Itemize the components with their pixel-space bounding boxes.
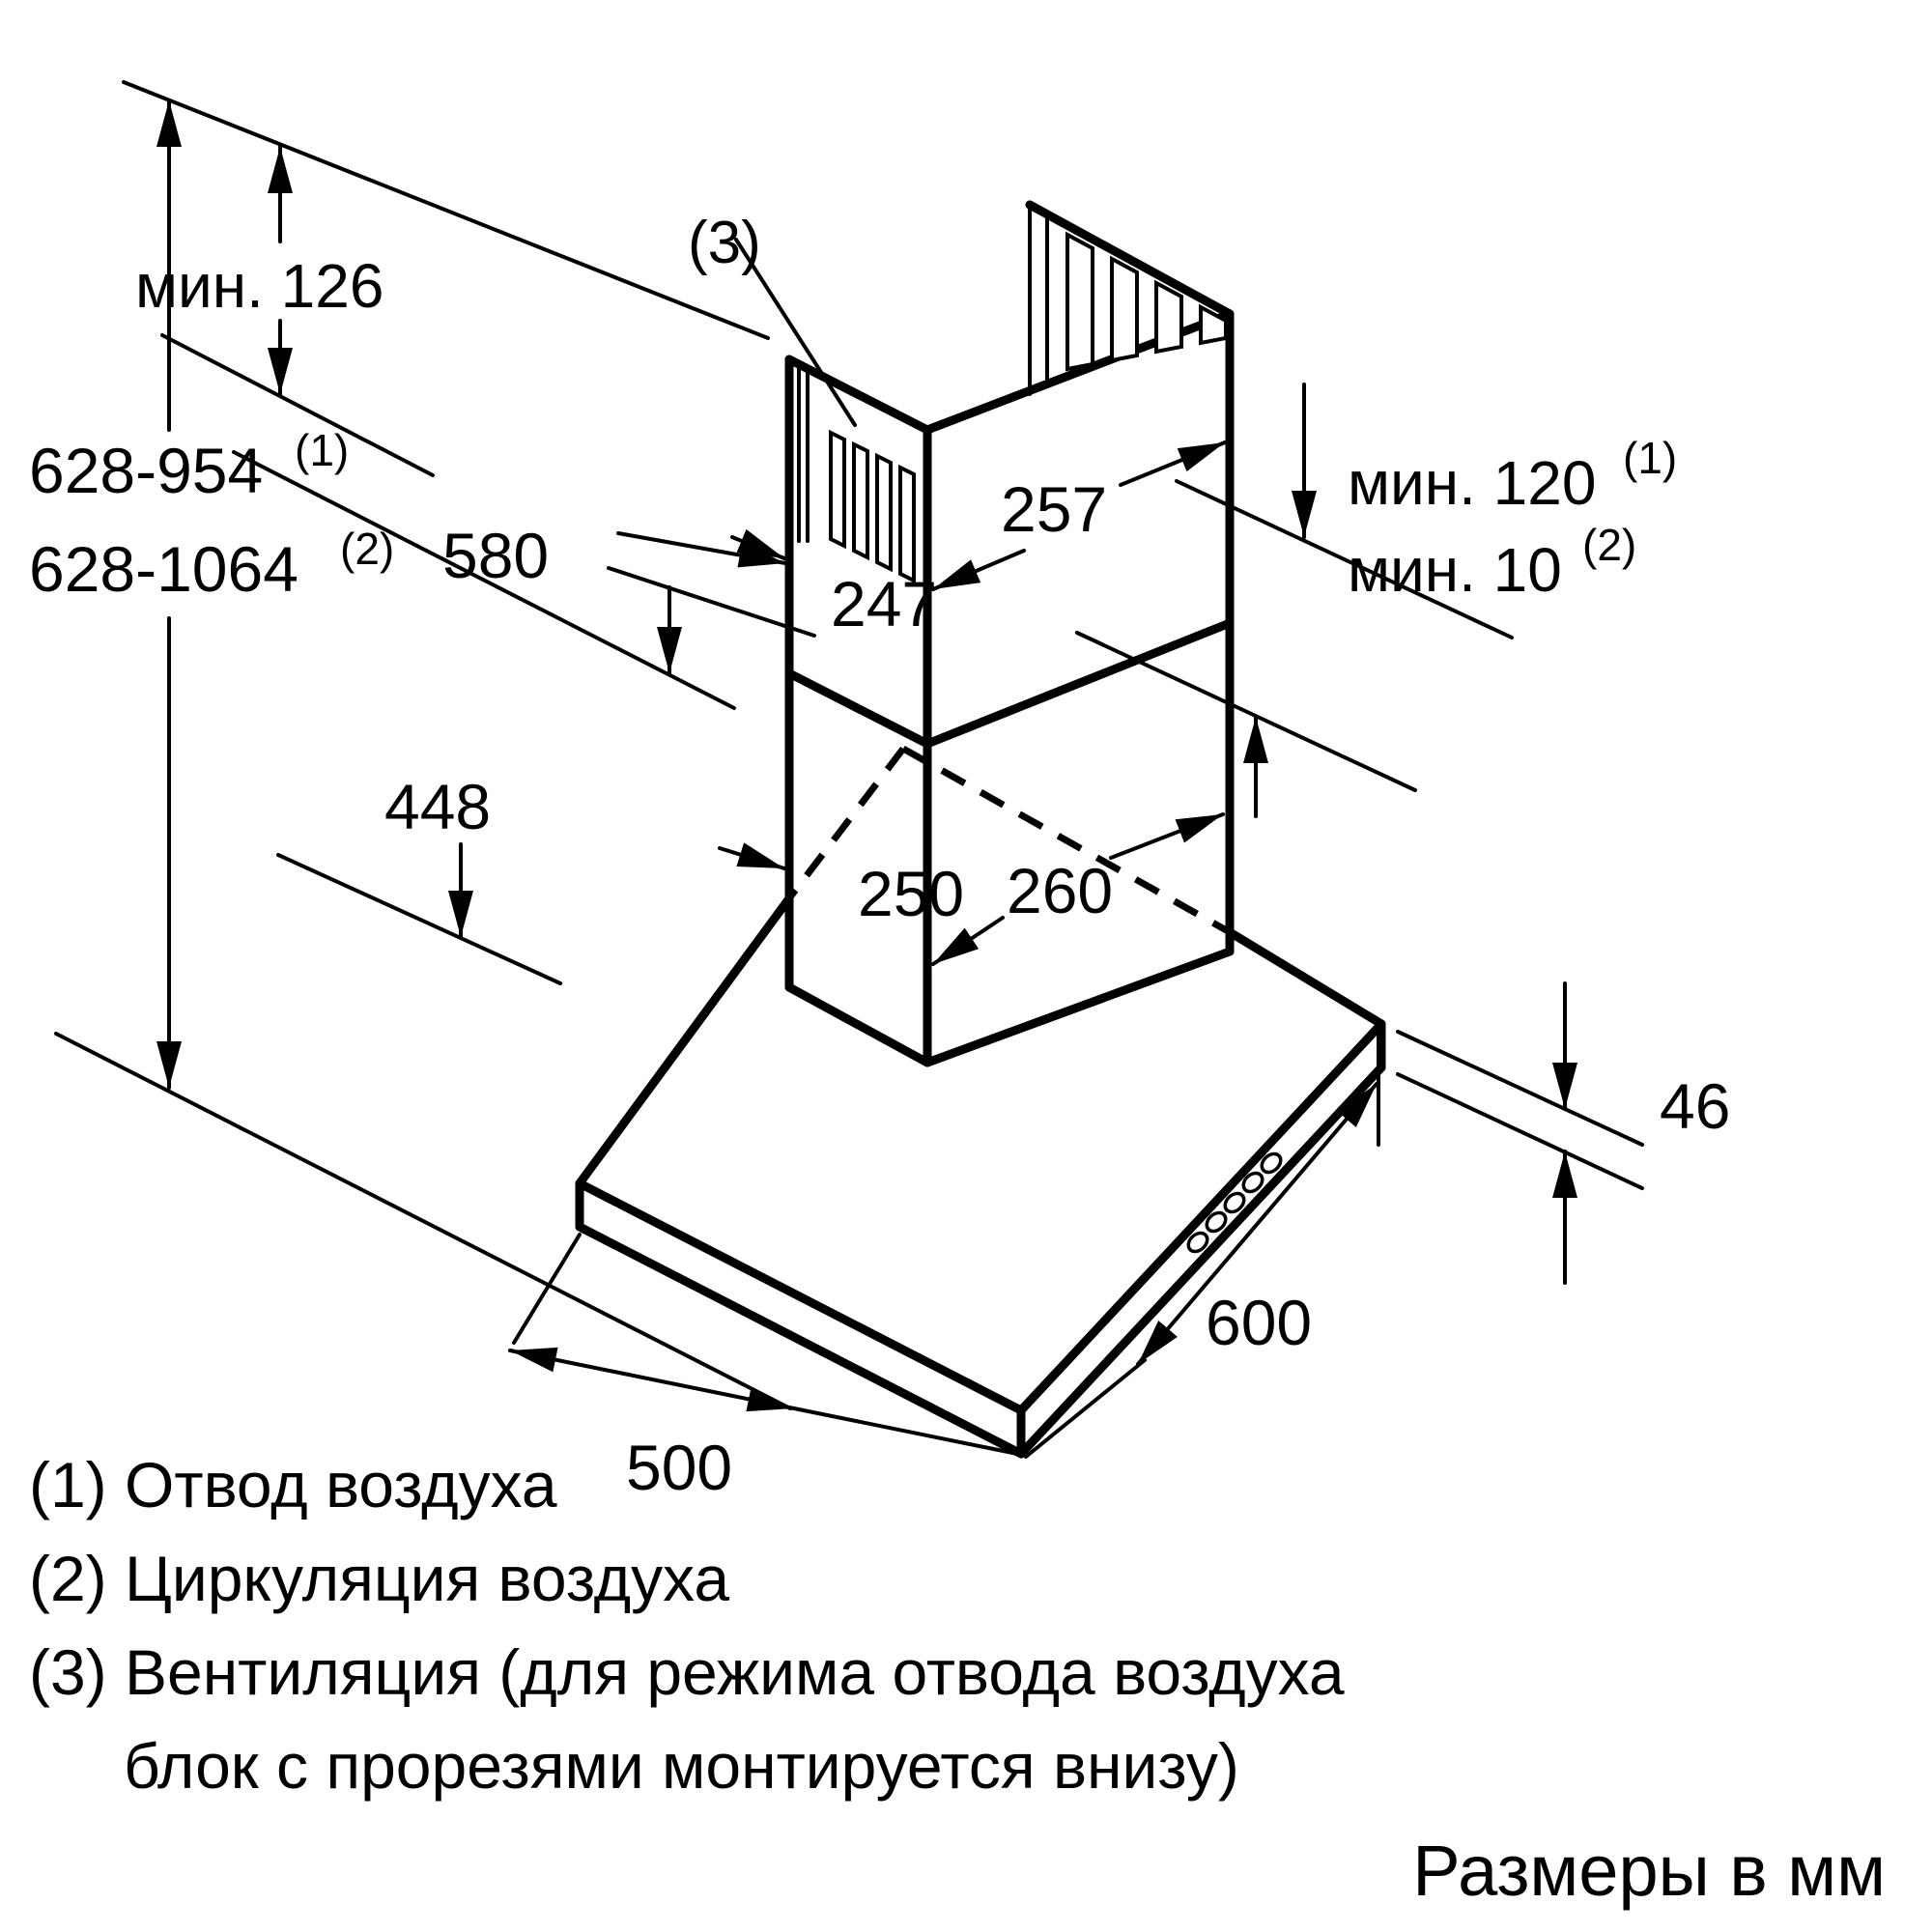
vent-slots-left-face [831,433,914,581]
label-hood-depth: 600 [1206,1287,1312,1358]
hood-dimension-drawing: мин. 126 628-954 (1) 628-1064 (2) 580 44… [0,0,1932,1932]
dim-hood-width [510,1235,1022,1455]
label-hood-width: 500 [626,1432,732,1503]
control-buttons [1184,1151,1284,1256]
label-lower-height: 448 [384,771,491,842]
dim-upper-section [618,533,785,673]
label-min-gap-recirc-ref: (2) [1582,520,1636,570]
label-ceiling-clearance: мин. 126 [135,251,384,321]
legend-line-3: (3) Вентиляция (для режима отвода воздух… [29,1636,1345,1708]
legend-line-2: (2) Циркуляция воздуха [29,1543,729,1614]
dim-hood-height [1398,983,1642,1283]
label-upper-height: 580 [442,520,549,591]
label-total-height-recirc: 628-1064 [29,533,298,605]
label-lower-front-width: 250 [858,858,964,929]
label-lower-side-width: 260 [1007,855,1113,926]
reference-lines-right [1077,481,1512,790]
label-total-height-recirc-ref: (2) [340,524,394,574]
legend-line-4: блок с прорезями монтируется внизу) [124,1730,1239,1802]
label-vent-callout: (3) [688,210,761,276]
label-min-gap-recirc: мин. 10 [1348,535,1562,605]
label-total-height-duct: 628-954 [29,435,263,506]
label-upper-front-width: 247 [831,568,937,639]
label-min-gap-duct: мин. 120 [1348,448,1596,518]
units-note: Размеры в мм [1412,1831,1886,1911]
label-hood-height: 46 [1660,1070,1730,1142]
legend-line-1: (1) Отвод воздуха [29,1449,557,1520]
dim-right-gaps [1256,384,1304,816]
label-upper-side-width: 257 [1001,473,1107,545]
label-total-height-duct-ref: (1) [295,425,349,475]
label-min-gap-duct-ref: (1) [1623,433,1677,483]
dimension-diagram: мин. 126 628-954 (1) 628-1064 (2) 580 44… [0,0,1932,1932]
